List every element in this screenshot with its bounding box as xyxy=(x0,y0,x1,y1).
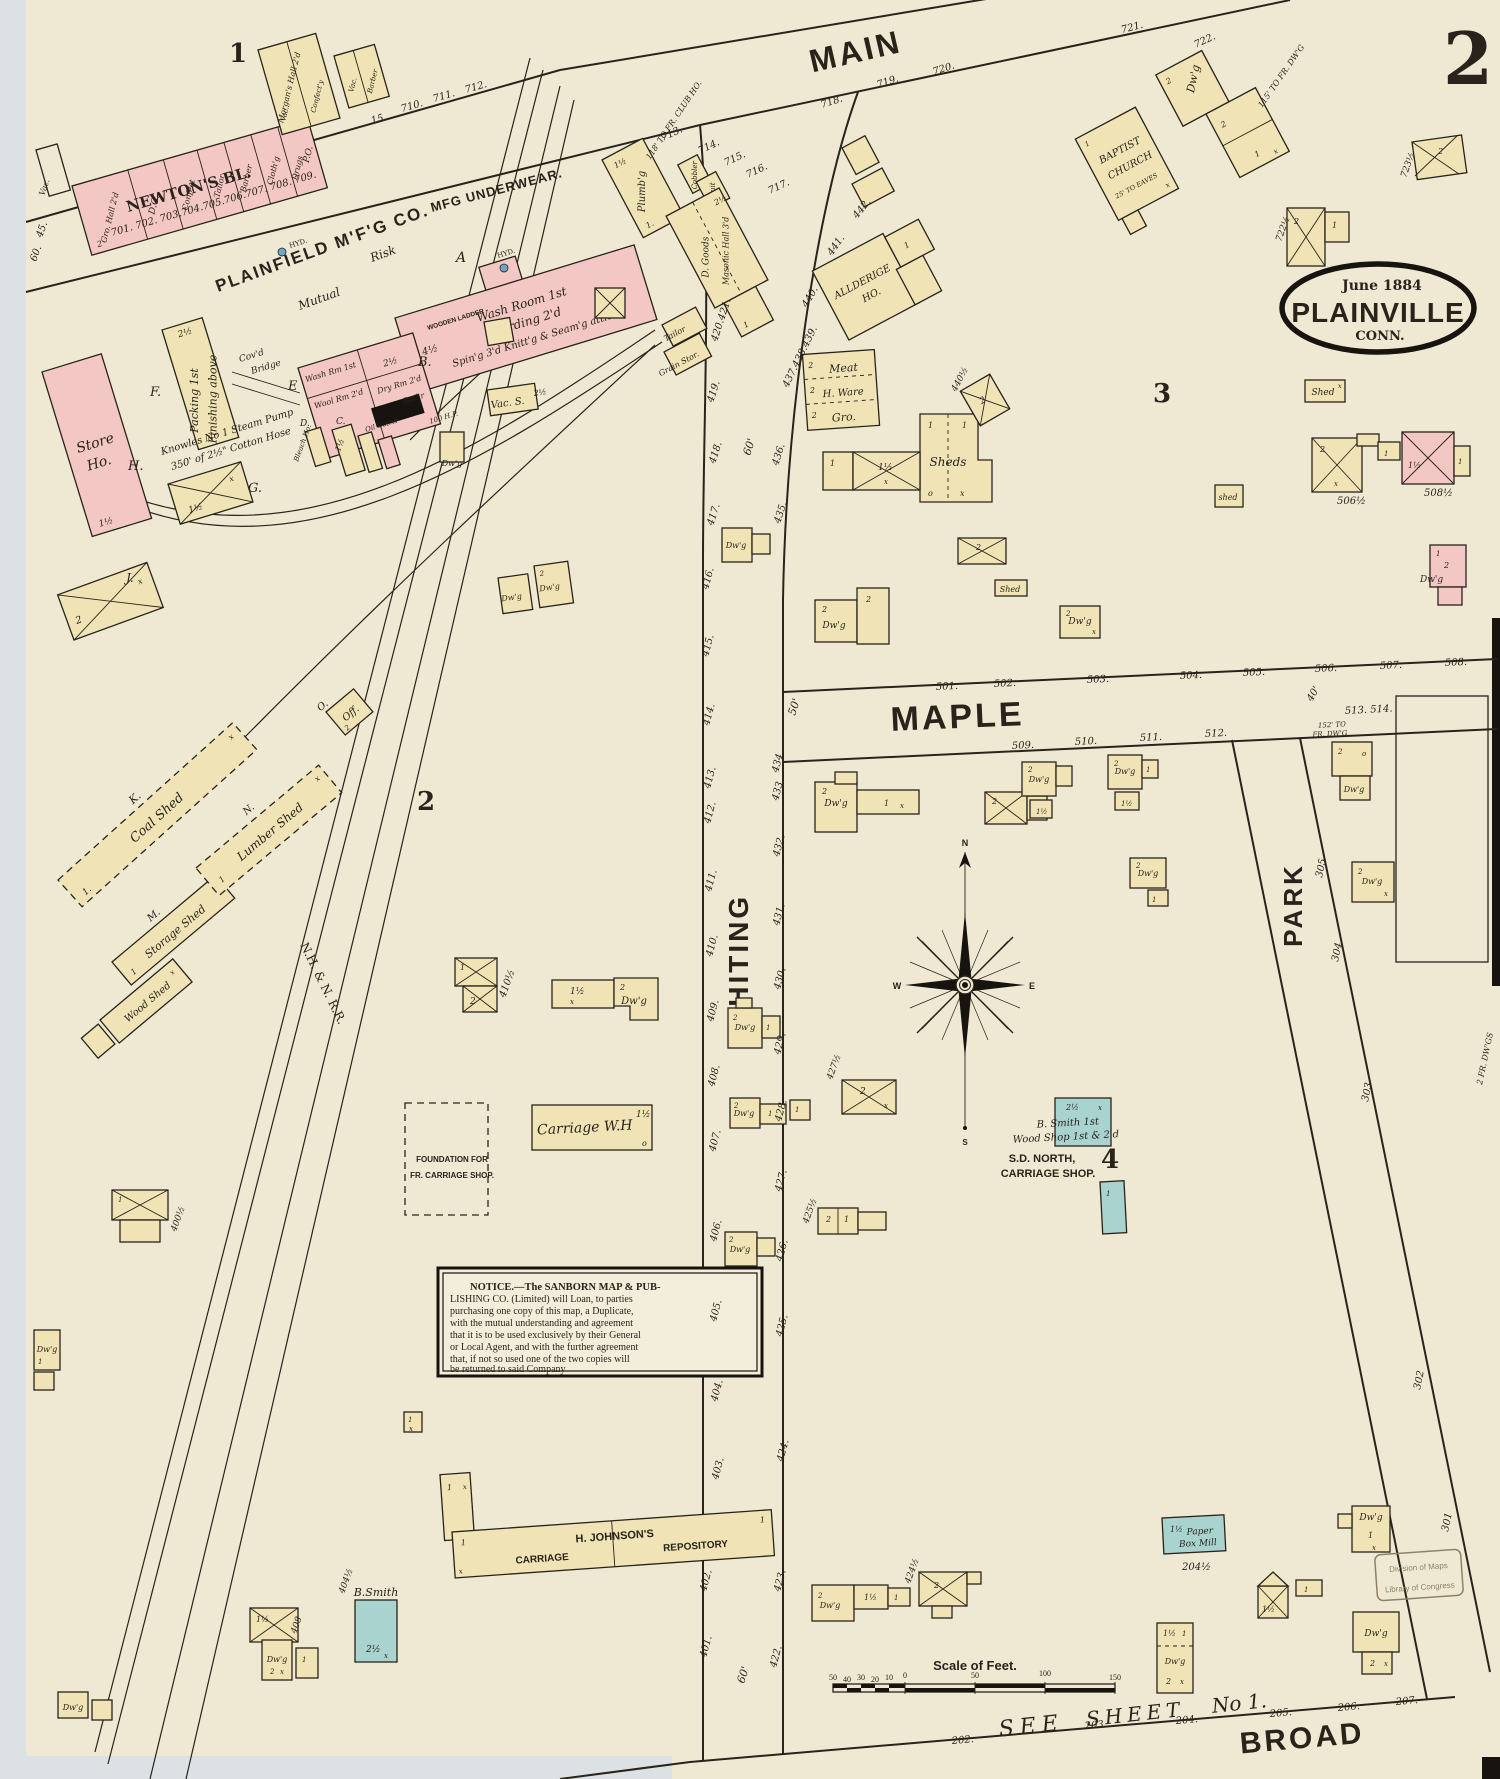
distance-note: 152' TO xyxy=(1318,720,1347,729)
svg-text:N: N xyxy=(962,838,969,848)
svg-text:shed: shed xyxy=(1218,493,1237,502)
svg-text:1: 1 xyxy=(460,1538,466,1547)
svg-text:1½: 1½ xyxy=(1163,1629,1176,1638)
svg-text:2½: 2½ xyxy=(365,1644,380,1655)
svg-text:Dw'g: Dw'g xyxy=(266,1655,288,1664)
shed-small: Shed xyxy=(995,580,1027,596)
svg-text:Box Mill: Box Mill xyxy=(1178,1538,1217,1550)
svg-text:CARRIAGE SHOP.: CARRIAGE SHOP. xyxy=(1001,1168,1096,1180)
svg-text:2: 2 xyxy=(975,543,981,552)
dwelling-br-1: 1½ 1 Dw'g 2 x xyxy=(1157,1623,1193,1693)
svg-text:1: 1 xyxy=(1436,550,1440,558)
svg-text:204.: 204. xyxy=(1174,1714,1198,1727)
svg-text:1: 1 xyxy=(1458,458,1462,466)
block-number-2: 2 xyxy=(417,787,435,817)
title-state: CONN. xyxy=(1355,329,1404,344)
svg-text:100: 100 xyxy=(1039,1669,1051,1678)
svg-text:2: 2 xyxy=(619,983,625,992)
svg-text:Dw'g: Dw'g xyxy=(1137,869,1159,878)
svg-text:Dw'g: Dw'g xyxy=(36,1345,58,1354)
svg-text:202.: 202. xyxy=(950,1734,974,1747)
svg-text:1: 1 xyxy=(768,1110,772,1118)
lot-number: 204½ xyxy=(1181,1562,1211,1573)
shed-lc: shed xyxy=(1215,485,1243,507)
svg-text:Dw'g: Dw'g xyxy=(733,1109,755,1118)
svg-text:203.: 203. xyxy=(1083,1719,1107,1732)
svg-text:502.: 502. xyxy=(994,678,1017,690)
sanborn-map-sheet: N.H. & N. R.R. MAIN MAIN MAPLE WHITING P… xyxy=(0,0,1500,1779)
svg-text:2: 2 xyxy=(1065,610,1071,618)
svg-text:x: x xyxy=(570,998,574,1006)
svg-text:2: 2 xyxy=(1293,217,1299,226)
svg-text:1: 1 xyxy=(408,1416,412,1424)
svg-text:1: 1 xyxy=(460,963,465,972)
svg-text:2: 2 xyxy=(821,605,827,614)
svg-text:D. Goods: D. Goods xyxy=(701,236,711,278)
svg-text:2: 2 xyxy=(1337,748,1343,756)
svg-text:x: x xyxy=(1384,1660,1388,1668)
svg-text:2: 2 xyxy=(933,1581,939,1590)
svg-text:FR. CARRIAGE SHOP.: FR. CARRIAGE SHOP. xyxy=(410,1171,494,1180)
notice-line: that it is to be used exclusively by the… xyxy=(450,1330,641,1341)
svg-text:Shed: Shed xyxy=(1311,388,1334,398)
svg-text:S: S xyxy=(962,1138,968,1147)
svg-text:Dw'g: Dw'g xyxy=(1419,575,1443,585)
svg-text:x: x xyxy=(409,1425,413,1433)
svg-text:Shed: Shed xyxy=(1000,585,1021,594)
svg-text:Dw'g: Dw'g xyxy=(62,1703,84,1712)
svg-text:Plumb'g: Plumb'g xyxy=(637,171,648,213)
svg-text:1: 1 xyxy=(118,1196,122,1204)
svg-text:Dw'g: Dw'g xyxy=(1114,767,1136,776)
scan-edge-bottom xyxy=(0,1756,672,1779)
svg-text:1: 1 xyxy=(795,1106,799,1114)
svg-text:x: x xyxy=(960,489,965,498)
svg-text:E: E xyxy=(1029,981,1035,991)
stable-row: 1 1½ x xyxy=(823,452,920,490)
title-city: PLAINVILLE xyxy=(1291,297,1464,328)
svg-text:1: 1 xyxy=(1332,221,1337,230)
svg-text:509.: 509. xyxy=(1012,740,1035,752)
svg-text:Dw'g: Dw'g xyxy=(821,621,845,631)
svg-text:2: 2 xyxy=(817,1592,823,1600)
svg-text:2: 2 xyxy=(1369,1659,1375,1668)
crossed-shed: 2 xyxy=(958,538,1006,564)
carriage-warehouse: Carriage W.H 1½ o xyxy=(532,1105,652,1150)
svg-text:2: 2 xyxy=(865,595,871,604)
svg-text:1: 1 xyxy=(302,1656,306,1664)
svg-text:S.D. NORTH,: S.D. NORTH, xyxy=(1009,1153,1076,1165)
svg-text:2: 2 xyxy=(1443,561,1449,570)
svg-text:Dw'g: Dw'g xyxy=(1067,617,1091,627)
lot-number: 508½ xyxy=(1424,488,1453,499)
svg-text:20: 20 xyxy=(871,1675,879,1684)
svg-text:2: 2 xyxy=(807,361,814,370)
svg-text:Masonic Hall 3'd: Masonic Hall 3'd xyxy=(722,217,731,286)
svg-text:1: 1 xyxy=(1384,450,1388,458)
svg-text:1½: 1½ xyxy=(1262,1605,1275,1614)
svg-text:x: x xyxy=(1338,382,1342,390)
svg-text:2: 2 xyxy=(1113,760,1119,768)
svg-text:207.: 207. xyxy=(1394,1695,1418,1708)
svg-text:2: 2 xyxy=(733,1102,739,1110)
svg-text:x: x xyxy=(900,802,904,810)
crossed-pair-midleft: 1 xyxy=(112,1190,168,1242)
small-building xyxy=(484,317,514,345)
small-building xyxy=(1296,1580,1322,1596)
svg-text:503.: 503. xyxy=(1087,674,1110,686)
svg-text:x: x xyxy=(884,478,888,486)
svg-text:511.: 511. xyxy=(1140,732,1163,744)
svg-text:Dw'g: Dw'g xyxy=(1363,1629,1387,1639)
mill-letter-H: H. xyxy=(127,459,143,474)
svg-text:o: o xyxy=(1362,750,1366,758)
notice-line: be returned to said Company xyxy=(450,1364,566,1375)
title-date: June 1884 xyxy=(1340,278,1422,294)
svg-text:1: 1 xyxy=(962,421,967,430)
svg-text:501.: 501. xyxy=(936,681,959,693)
mill-letter-F: F. xyxy=(149,385,161,400)
svg-text:x: x xyxy=(884,1102,888,1110)
svg-text:2: 2 xyxy=(1319,445,1325,454)
svg-text:x: x xyxy=(463,1483,468,1491)
crossed-small: 1 x xyxy=(404,1412,422,1433)
svg-text:Meat: Meat xyxy=(828,361,859,376)
svg-text:504.: 504. xyxy=(1180,670,1203,682)
svg-text:1: 1 xyxy=(447,1483,453,1492)
svg-text:2½: 2½ xyxy=(1065,1103,1079,1112)
svg-text:Dw'g: Dw'g xyxy=(1028,775,1050,784)
svg-text:1½: 1½ xyxy=(1408,461,1421,470)
shed-upper: Shed x xyxy=(1305,380,1345,402)
svg-text:2: 2 xyxy=(991,797,997,806)
svg-text:1½: 1½ xyxy=(570,986,584,997)
svg-text:2: 2 xyxy=(732,1014,738,1022)
svg-text:1: 1 xyxy=(1146,766,1150,774)
svg-text:505.: 505. xyxy=(1243,667,1266,679)
lot-number: 506½ xyxy=(1337,496,1366,507)
svg-text:512.: 512. xyxy=(1205,728,1228,740)
svg-text:Dw'g: Dw'g xyxy=(1358,1513,1382,1523)
svg-text:Dw'g: Dw'g xyxy=(734,1023,756,1032)
street-label-park: PARK xyxy=(1278,863,1308,947)
svg-text:2½: 2½ xyxy=(532,387,547,398)
svg-text:x: x xyxy=(1334,480,1338,488)
svg-text:1½: 1½ xyxy=(1036,808,1047,816)
svg-text:2: 2 xyxy=(728,1236,734,1244)
notice-line: or Local Agent, and with the further agr… xyxy=(450,1342,638,1353)
svg-text:1½: 1½ xyxy=(256,1615,269,1624)
svg-text:2: 2 xyxy=(825,1215,831,1224)
svg-text:Dw'g: Dw'g xyxy=(1164,1657,1186,1666)
svg-text:205.: 205. xyxy=(1268,1707,1292,1720)
svg-text:40: 40 xyxy=(843,1675,851,1684)
svg-text:2: 2 xyxy=(1135,862,1141,870)
svg-text:0: 0 xyxy=(903,1671,907,1680)
dwelling-east-park: Dw'g 2 x xyxy=(1352,862,1394,902)
svg-text:30: 30 xyxy=(857,1673,865,1682)
mill-letter-B: B. xyxy=(417,355,432,370)
paper-box-mill: 1½ Paper Box Mill xyxy=(1162,1515,1226,1554)
svg-text:2: 2 xyxy=(469,997,476,1007)
svg-text:x: x xyxy=(384,1652,388,1660)
svg-text:x: x xyxy=(459,1567,464,1575)
svg-text:2: 2 xyxy=(269,1668,275,1676)
meat-hardware-grocery: Meat H. Ware Gro. 2 2 2 xyxy=(802,350,879,431)
svg-text:2: 2 xyxy=(859,1087,866,1097)
svg-text:Dw'g: Dw'g xyxy=(441,459,463,468)
svg-text:2: 2 xyxy=(1165,1677,1171,1686)
svg-text:Dw'g: Dw'g xyxy=(823,799,847,809)
block-number-1: 1 xyxy=(229,39,247,69)
mill-letter-A: A xyxy=(454,250,466,266)
svg-text:510.: 510. xyxy=(1075,736,1098,748)
notice-line: purchasing one copy of this map, a Dupli… xyxy=(450,1306,634,1317)
svg-text:2: 2 xyxy=(810,411,817,420)
svg-text:2: 2 xyxy=(1027,766,1033,774)
svg-text:Dw'g: Dw'g xyxy=(729,1245,751,1254)
svg-text:2: 2 xyxy=(1437,147,1443,156)
svg-text:x: x xyxy=(1180,1678,1184,1686)
svg-text:Dw'g: Dw'g xyxy=(725,541,747,550)
svg-text:1: 1 xyxy=(894,1594,898,1602)
street-label-maple: MAPLE xyxy=(890,695,1026,739)
svg-text:B.Smith: B.Smith xyxy=(353,1586,399,1599)
svg-text:o: o xyxy=(642,1139,647,1148)
svg-text:2: 2 xyxy=(1357,868,1363,876)
dwelling-b4-3: 2 1 xyxy=(818,1208,886,1234)
svg-text:x: x xyxy=(1098,1104,1102,1112)
svg-text:1: 1 xyxy=(884,799,889,808)
title-oval: June 1884 PLAINVILLE CONN. xyxy=(1282,264,1474,352)
hydrant-dot xyxy=(278,248,286,256)
svg-text:Dw'g: Dw'g xyxy=(819,1601,841,1610)
svg-text:Dw'g: Dw'g xyxy=(1343,785,1365,794)
svg-text:1: 1 xyxy=(38,1358,42,1366)
svg-text:1: 1 xyxy=(1368,1531,1373,1540)
block-number-4: 4 xyxy=(1101,1145,1119,1175)
sheet-number: 2 xyxy=(1443,16,1493,101)
svg-text:1½: 1½ xyxy=(1170,1525,1183,1534)
svg-text:1: 1 xyxy=(1152,896,1156,904)
svg-text:x: x xyxy=(1372,1544,1376,1552)
notice-line: LISHING CO. (Limited) will Loan, to part… xyxy=(450,1294,633,1305)
svg-text:x: x xyxy=(1092,628,1096,636)
svg-text:2: 2 xyxy=(821,787,827,796)
svg-text:FOUNDATION FOR: FOUNDATION FOR xyxy=(416,1155,488,1164)
svg-text:W: W xyxy=(893,981,902,991)
svg-text:Dw'g: Dw'g xyxy=(620,996,647,1007)
svg-text:1½: 1½ xyxy=(864,1593,877,1602)
svg-text:10: 10 xyxy=(885,1673,893,1682)
svg-text:206.: 206. xyxy=(1336,1701,1360,1714)
scan-artifact-corner xyxy=(1482,1757,1500,1779)
svg-text:o: o xyxy=(928,489,933,498)
svg-text:Dw'g: Dw'g xyxy=(1361,877,1383,886)
b-smith-building: B.Smith 2½ x xyxy=(353,1586,399,1662)
mill-packing: Packing 1st xyxy=(188,368,201,434)
svg-text:1: 1 xyxy=(928,421,933,430)
svg-text:Paper: Paper xyxy=(1185,1526,1214,1537)
svg-text:1: 1 xyxy=(1106,1190,1110,1198)
map-canvas: N.H. & N. R.R. MAIN MAIN MAPLE WHITING P… xyxy=(0,0,1500,1779)
storey-mark: 1 xyxy=(1304,1586,1308,1594)
crossed-building-723h: 2 xyxy=(1412,135,1467,180)
small-dwelling: Dw'g xyxy=(440,432,464,468)
svg-text:507.: 507. xyxy=(1380,660,1403,672)
svg-text:50: 50 xyxy=(829,1673,837,1682)
svg-text:1: 1 xyxy=(844,1215,849,1224)
svg-text:Sheds: Sheds xyxy=(930,455,967,469)
svg-text:1½: 1½ xyxy=(878,462,892,473)
svg-text:1: 1 xyxy=(830,459,835,468)
svg-text:1½: 1½ xyxy=(1121,800,1132,808)
svg-text:2: 2 xyxy=(809,386,816,395)
svg-text:Gro.: Gro. xyxy=(831,410,856,425)
svg-text:150: 150 xyxy=(1109,1673,1121,1682)
scan-artifact-right xyxy=(1492,618,1500,986)
svg-text:x: x xyxy=(1384,890,1388,898)
svg-text:508.: 508. xyxy=(1445,657,1468,669)
svg-text:x: x xyxy=(280,1668,284,1676)
svg-text:506.: 506. xyxy=(1315,663,1338,675)
notice-line: with the mutual understanding and agreem… xyxy=(450,1318,633,1329)
svg-text:1½: 1½ xyxy=(636,1109,650,1120)
svg-text:50: 50 xyxy=(971,1671,979,1680)
block-number-3: 3 xyxy=(1153,379,1171,409)
mill-letter-C: C. xyxy=(336,417,346,427)
svg-text:1: 1 xyxy=(1182,1630,1186,1638)
dwelling: Dw'g 2 x xyxy=(1060,606,1100,638)
crossed-stable: 2 x xyxy=(842,1080,896,1114)
scan-edge-left xyxy=(0,0,26,1779)
notice-line: NOTICE.—The SANBORN MAP & PUB- xyxy=(470,1282,661,1293)
mill-letter-G: G. xyxy=(248,481,262,496)
svg-text:1: 1 xyxy=(760,1515,766,1524)
svg-text:1: 1 xyxy=(766,1024,770,1032)
hydrant-dot xyxy=(500,264,508,272)
